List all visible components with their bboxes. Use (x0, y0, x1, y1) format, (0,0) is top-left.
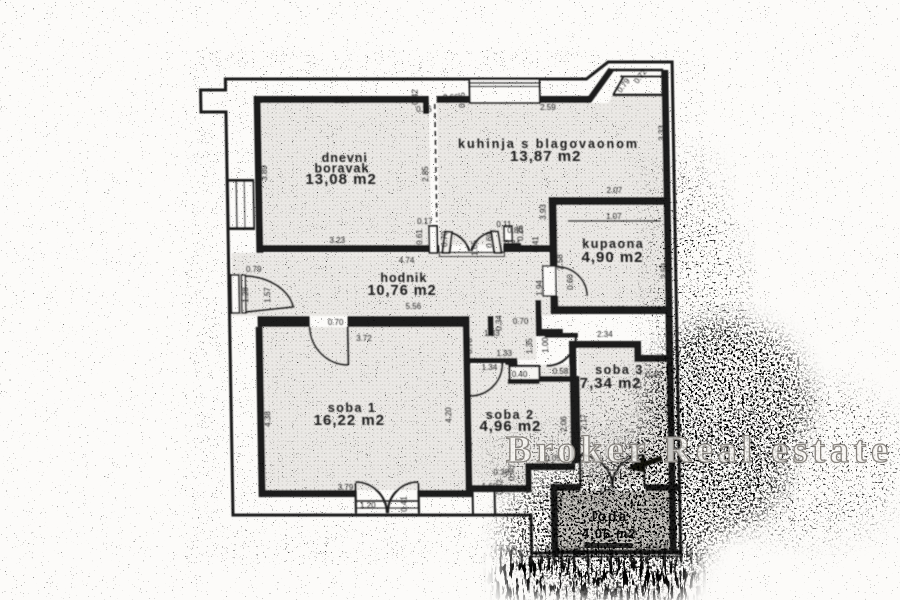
svg-text:Broker Real estate: Broker Real estate (506, 429, 893, 471)
